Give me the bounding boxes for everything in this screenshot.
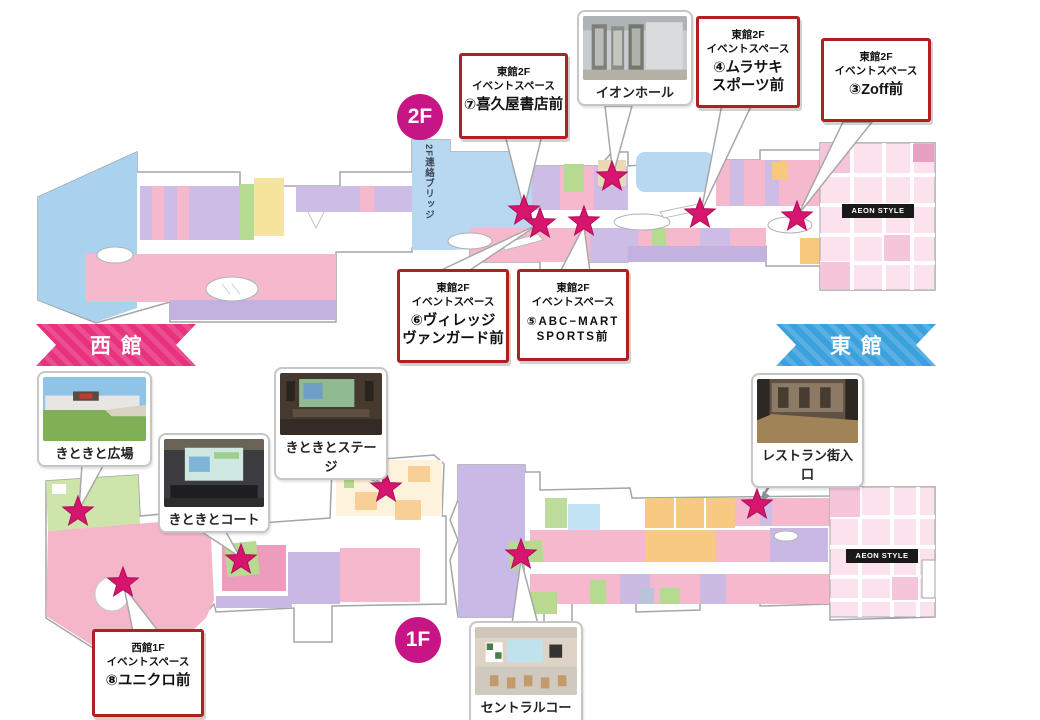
aeon-style-label-1f: AEON STYLE [846,549,918,563]
east-building-label: 東館 [820,330,892,360]
photo-label: セントラルコート [475,695,577,720]
callout-space-label: イベントスペース [824,64,928,78]
callout-title: ⑦喜久屋書店前 [462,96,565,114]
west-building-label: 西館 [80,330,152,360]
kitokito-court-photo [164,439,264,507]
callout-space-label: イベントスペース [520,295,626,309]
west-building-banner: 西館 [36,324,196,366]
callout-space-label: イベントスペース [699,42,797,56]
photo-callout-kitokito-stage: きときとステージ [274,367,388,480]
kitokito-stage-photo [280,373,382,435]
photo-label: きときとステージ [280,435,382,476]
photo-callout-central-court: セントラルコート [469,621,583,720]
photo-label: レストラン街入口 [757,443,858,484]
mall-floor-map-page: 2F 1F 2F連絡ブリッジ AEON STYLE AEON STYLE 西館 … [0,0,1040,720]
callout-title: ⑧ユニクロ前 [95,672,201,690]
callout-event-7-kikuya: 東館2F イベントスペース ⑦喜久屋書店前 [459,53,568,139]
photo-label: きときと広場 [43,441,146,463]
callout-space-label: イベントスペース [400,295,506,309]
callout-building-floor: 東館2F [400,281,506,295]
floor-badge-1f: 1F [395,617,441,663]
restaurant-entrance-photo [757,379,858,443]
callout-event-5-abcmart: 東館2F イベントスペース ⑤ABC−MART SPORTS前 [517,269,629,361]
callout-building-floor: 東館2F [462,65,565,79]
floor-badge-2f: 2F [397,94,443,140]
callout-title: ⑥ヴィレッジ [400,312,506,330]
aeon-hall-photo [583,16,687,80]
callout-event-4-murasaki: 東館2F イベントスペース ④ムラサキ スポーツ前 [696,16,800,108]
photo-callout-aeon-hall: イオンホール [577,10,693,106]
callout-title: ④ムラサキ [699,59,797,77]
callout-building-floor: 東館2F [520,281,626,295]
callout-building-floor: 西館1F [95,641,201,655]
callout-title-2: ヴァンガード前 [400,330,506,348]
east-building-banner: 東館 [776,324,936,366]
bridge-label: 2F連絡ブリッジ [417,144,435,244]
central-court-photo [475,627,577,695]
callout-title-2: SPORTS前 [520,330,626,344]
photo-label: きときとコート [164,507,264,529]
callout-space-label: イベントスペース [95,655,201,669]
callout-space-label: イベントスペース [462,79,565,93]
photo-label: イオンホール [583,80,687,102]
callout-event-3-zoff: 東館2F イベントスペース ③Zoff前 [821,38,931,122]
callout-title: ⑤ABC−MART [520,315,626,329]
photo-callout-kitokito-court: きときとコート [158,433,270,533]
callout-event-8-uniqlo: 西館1F イベントスペース ⑧ユニクロ前 [92,629,204,717]
callout-building-floor: 東館2F [824,50,928,64]
photo-callout-restaurant-entrance: レストラン街入口 [751,373,864,488]
callout-title-2: スポーツ前 [699,77,797,95]
aeon-style-label-2f: AEON STYLE [842,204,914,218]
photo-callout-kitokito-hiroba: きときと広場 [37,371,152,467]
callout-event-6-village: 東館2F イベントスペース ⑥ヴィレッジ ヴァンガード前 [397,269,509,363]
callout-building-floor: 東館2F [699,28,797,42]
callout-title: ③Zoff前 [824,81,928,99]
kitokito-hiroba-photo [43,377,146,441]
